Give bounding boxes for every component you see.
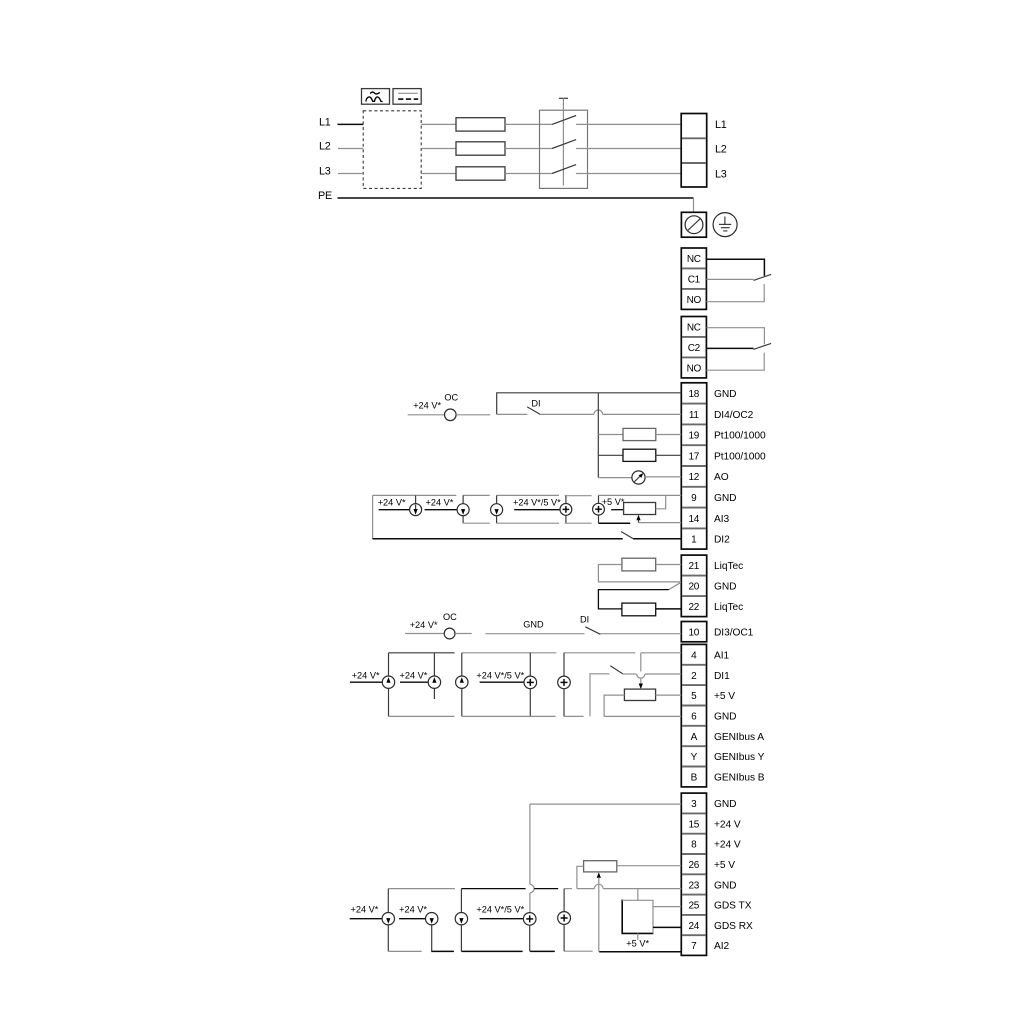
svg-text:23: 23 bbox=[689, 880, 700, 891]
svg-text:OC: OC bbox=[444, 393, 458, 403]
svg-text:AO: AO bbox=[714, 472, 729, 483]
svg-text:1: 1 bbox=[691, 535, 697, 546]
svg-text:AI2: AI2 bbox=[714, 941, 730, 952]
svg-text:+24 V*/5 V*: +24 V*/5 V* bbox=[513, 498, 561, 508]
svg-text:22: 22 bbox=[689, 602, 700, 613]
svg-text:19: 19 bbox=[689, 431, 700, 442]
svg-text:+24 V*: +24 V* bbox=[351, 904, 379, 914]
svg-text:17: 17 bbox=[689, 451, 700, 462]
svg-text:5: 5 bbox=[691, 691, 697, 702]
svg-text:+24 V*: +24 V* bbox=[352, 670, 380, 680]
svg-text:L2: L2 bbox=[715, 143, 727, 155]
svg-text:A: A bbox=[691, 732, 698, 743]
svg-text:AI1: AI1 bbox=[714, 651, 730, 662]
svg-text:GND: GND bbox=[714, 493, 737, 504]
svg-text:DI3/OC1: DI3/OC1 bbox=[714, 628, 754, 639]
svg-text:DI: DI bbox=[531, 399, 540, 409]
svg-text:15: 15 bbox=[689, 819, 700, 830]
svg-text:GND: GND bbox=[714, 712, 737, 723]
svg-text:L1: L1 bbox=[319, 116, 331, 128]
svg-text:B: B bbox=[691, 773, 698, 784]
svg-text:C1: C1 bbox=[688, 275, 701, 286]
svg-text:+5 V: +5 V bbox=[714, 860, 735, 871]
svg-text:20: 20 bbox=[689, 582, 700, 593]
svg-text:4: 4 bbox=[691, 651, 697, 662]
svg-text:14: 14 bbox=[689, 514, 700, 525]
svg-text:OC: OC bbox=[443, 612, 457, 622]
svg-text:+24 V*: +24 V* bbox=[378, 498, 406, 508]
svg-text:Pt100/1000: Pt100/1000 bbox=[714, 431, 766, 442]
svg-text:18: 18 bbox=[689, 389, 700, 400]
svg-text:+24 V*: +24 V* bbox=[413, 401, 441, 411]
svg-text:GDS RX: GDS RX bbox=[714, 921, 753, 932]
svg-text:NC: NC bbox=[687, 323, 701, 334]
svg-text:26: 26 bbox=[689, 860, 700, 871]
svg-text:NC: NC bbox=[687, 254, 701, 265]
svg-text:GENIbus Y: GENIbus Y bbox=[714, 752, 765, 763]
svg-text:GDS TX: GDS TX bbox=[714, 901, 752, 912]
svg-text:10: 10 bbox=[689, 628, 700, 639]
svg-text:C2: C2 bbox=[688, 343, 701, 354]
svg-text:+24 V*: +24 V* bbox=[400, 670, 428, 680]
svg-text:8: 8 bbox=[691, 840, 697, 851]
svg-text:DI4/OC2: DI4/OC2 bbox=[714, 410, 754, 421]
svg-text:24: 24 bbox=[689, 921, 700, 932]
svg-text:NO: NO bbox=[687, 295, 702, 306]
svg-text:+5 V: +5 V bbox=[714, 691, 735, 702]
svg-text:L3: L3 bbox=[715, 168, 727, 180]
svg-text:GENIbus A: GENIbus A bbox=[714, 732, 764, 743]
svg-text:LiqTec: LiqTec bbox=[714, 561, 743, 572]
svg-text:DI1: DI1 bbox=[714, 671, 730, 682]
svg-text:LiqTec: LiqTec bbox=[714, 602, 743, 613]
svg-text:+24 V: +24 V bbox=[714, 840, 741, 851]
svg-text:AI3: AI3 bbox=[714, 514, 730, 525]
svg-text:Pt100/1000: Pt100/1000 bbox=[714, 451, 766, 462]
svg-text:+24 V*/5 V*: +24 V*/5 V* bbox=[476, 904, 524, 914]
svg-text:GENIbus B: GENIbus B bbox=[714, 773, 765, 784]
svg-text:+5 V*: +5 V* bbox=[626, 939, 649, 949]
svg-text:+5 V*: +5 V* bbox=[602, 497, 625, 507]
svg-text:12: 12 bbox=[689, 472, 700, 483]
svg-text:9: 9 bbox=[691, 493, 697, 504]
svg-text:GND: GND bbox=[714, 799, 737, 810]
svg-text:DI2: DI2 bbox=[714, 535, 730, 546]
svg-text:L1: L1 bbox=[715, 119, 727, 131]
svg-text:DI: DI bbox=[580, 614, 589, 624]
svg-text:25: 25 bbox=[689, 901, 700, 912]
svg-text:PE: PE bbox=[318, 190, 332, 202]
svg-text:+24 V*/5 V*: +24 V*/5 V* bbox=[476, 670, 524, 680]
svg-text:3: 3 bbox=[691, 799, 697, 810]
svg-text:GND: GND bbox=[714, 389, 737, 400]
svg-text:Y: Y bbox=[691, 752, 698, 763]
svg-text:GND: GND bbox=[523, 620, 544, 630]
svg-text:6: 6 bbox=[691, 712, 697, 723]
svg-text:11: 11 bbox=[689, 410, 700, 421]
svg-text:+24 V: +24 V bbox=[714, 819, 741, 830]
svg-text:21: 21 bbox=[689, 561, 700, 572]
svg-text:+24 V*: +24 V* bbox=[426, 498, 454, 508]
svg-text:L2: L2 bbox=[319, 140, 331, 152]
svg-text:+24 V*: +24 V* bbox=[399, 904, 427, 914]
svg-text:L3: L3 bbox=[319, 165, 331, 177]
svg-text:GND: GND bbox=[714, 582, 737, 593]
svg-text:2: 2 bbox=[691, 671, 697, 682]
svg-text:+24 V*: +24 V* bbox=[410, 620, 438, 630]
svg-text:NO: NO bbox=[687, 364, 702, 375]
svg-text:GND: GND bbox=[714, 880, 737, 891]
svg-text:7: 7 bbox=[691, 941, 697, 952]
